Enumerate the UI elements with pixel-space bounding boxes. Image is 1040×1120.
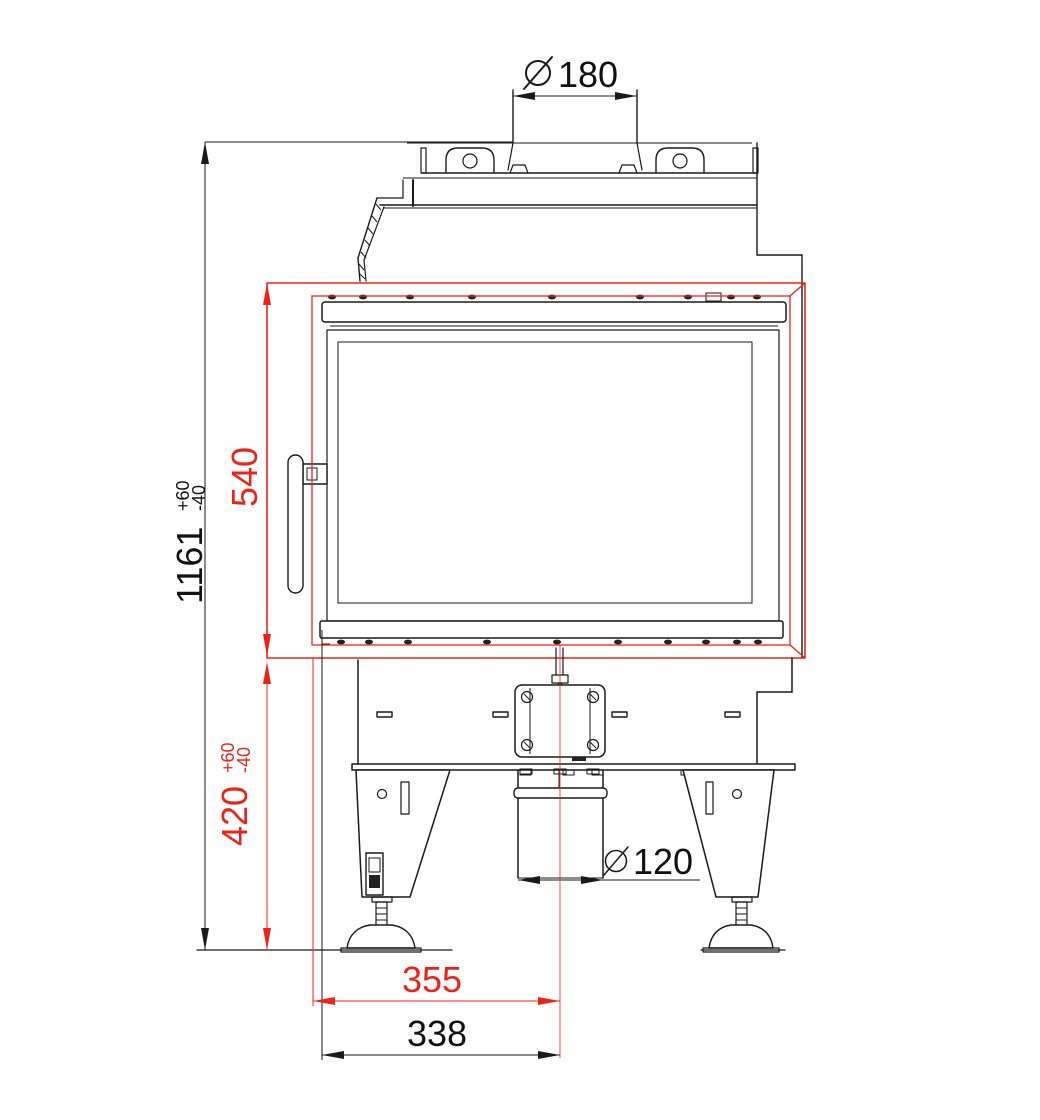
frame-red-outline — [267, 283, 805, 658]
dim-base-height-value: 420 — [214, 786, 255, 846]
bracket-hole-left — [463, 154, 477, 168]
dim-base-height-tol-minus: -40 — [234, 747, 254, 773]
frame-outer — [267, 283, 805, 658]
body-top — [358, 143, 802, 658]
door-bottom-screws — [337, 640, 762, 645]
frame-inner — [312, 296, 790, 645]
dim-flue-diameter: 180 — [513, 54, 637, 100]
dim-flue-diameter-value: 180 — [558, 54, 618, 95]
rail-end-tab-left — [421, 148, 426, 173]
door-bottom-bar — [320, 621, 783, 638]
technical-drawing: 1161 +60 -40 180 120 338 — [0, 0, 1040, 1120]
diameter-symbol-180 — [524, 57, 552, 89]
dim-base-height: 420 +60 -40 — [214, 662, 271, 950]
hinge-plate — [706, 293, 721, 301]
collar-clip-left — [510, 165, 528, 173]
leg-right — [683, 770, 774, 897]
door-top-screws — [328, 295, 761, 300]
flue-collar — [508, 90, 642, 173]
leg-left — [356, 770, 450, 897]
mounting-rail — [403, 143, 758, 178]
intake-pipe — [514, 769, 607, 878]
diameter-symbol-120 — [604, 847, 628, 875]
handle-bar — [288, 455, 303, 593]
dim-intake-diameter-value: 120 — [633, 841, 693, 882]
dim-offset-355-value: 355 — [402, 959, 462, 1000]
glass-pane — [338, 342, 752, 603]
dim-glass-height: 540 — [224, 283, 271, 656]
foot-left — [341, 897, 421, 952]
door-bottom-step — [322, 638, 330, 644]
foot-right — [703, 897, 779, 952]
mounting-bracket-right — [656, 148, 704, 173]
dim-glass-height-value: 540 — [224, 447, 265, 507]
mounting-bracket-left — [446, 148, 494, 173]
drawing-page: 1161 +60 -40 180 120 338 — [0, 0, 1040, 1120]
pipe-rim — [514, 788, 607, 798]
collar-clip-right — [619, 165, 637, 173]
dim-offset-338-value: 338 — [407, 1013, 467, 1054]
dim-total-height-value: 1161 — [169, 527, 210, 604]
left-seam — [358, 198, 384, 281]
door-handle — [288, 455, 327, 593]
dim-total-height-tol-minus: -40 — [189, 485, 209, 511]
door-top-bar — [322, 302, 786, 322]
glass-frame — [327, 330, 779, 621]
bracket-hole-right — [673, 154, 687, 168]
door-assembly — [288, 293, 786, 644]
lower-body — [352, 648, 795, 775]
